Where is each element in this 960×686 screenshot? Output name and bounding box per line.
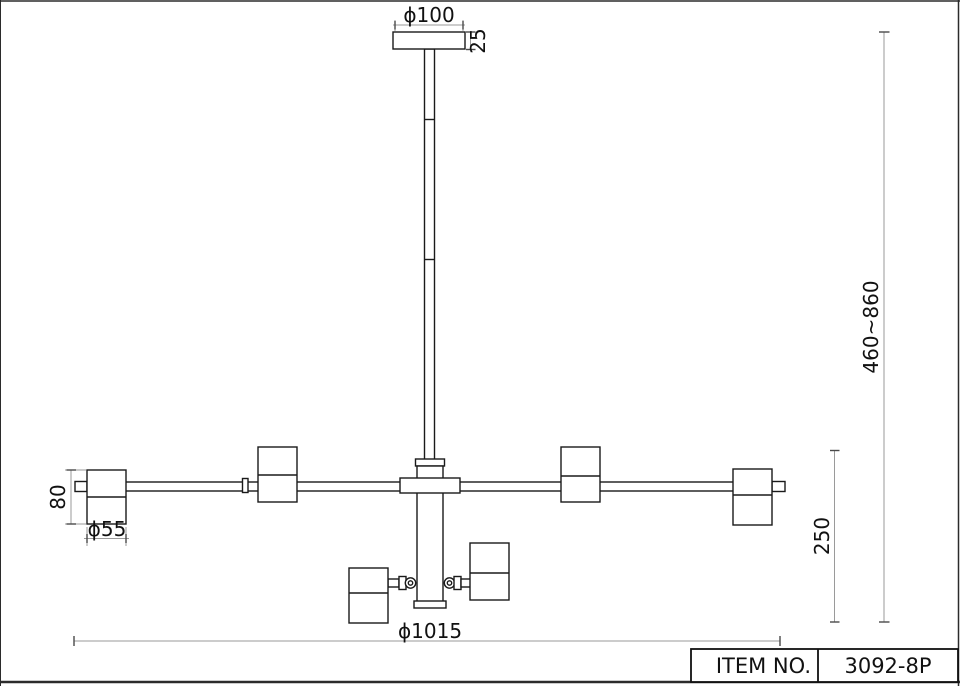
dim-canopy-height: 25 <box>466 28 490 53</box>
dim-label-canopy-height: 25 <box>466 28 490 53</box>
dim-label-shade-diameter: ϕ55 <box>88 517 127 541</box>
dim-fixture-width: ϕ1015 <box>74 619 780 646</box>
dim-drop-height: 250 <box>810 451 840 623</box>
lamp-bottom-right-body <box>470 543 509 600</box>
dim-suspension-range: 460~860 <box>859 32 890 622</box>
lamp-bottom-left <box>349 568 388 623</box>
lamp-bottom-left-body <box>349 568 388 623</box>
lamp-inner-right-body <box>561 447 600 502</box>
dim-label-canopy-diameter: ϕ100 <box>403 3 454 27</box>
dim-canopy-diameter: ϕ100 <box>393 3 465 31</box>
drawing-sheet: ϕ100 25 460~860 250 80 ϕ55 <box>0 0 960 686</box>
lamp-inner-right <box>561 447 600 502</box>
dim-label-drop-height: 250 <box>810 517 834 555</box>
bar-left-end-cap <box>75 482 87 492</box>
lamp-outer-right-body <box>733 469 772 525</box>
central-bottom-cap <box>414 601 446 608</box>
dim-label-suspension-range: 460~860 <box>859 280 883 373</box>
lamp-bottom-right <box>470 543 509 600</box>
dim-shade-diameter: ϕ55 <box>84 517 129 546</box>
left-swivel-arm <box>388 579 399 587</box>
right-swivel-pin <box>447 581 451 585</box>
dim-label-fixture-width: ϕ1015 <box>398 619 462 643</box>
ceiling-canopy <box>393 32 465 49</box>
item-no-value: 3092-8P <box>844 654 931 678</box>
dim-label-shade-height: 80 <box>46 484 70 509</box>
lamp-outer-left <box>87 470 126 524</box>
fixture-suspension <box>393 32 465 466</box>
central-hub-plate <box>400 478 460 493</box>
bar-coupler <box>243 479 249 493</box>
suspension-rod <box>425 49 435 460</box>
dim-shade-height: 80 <box>46 470 86 524</box>
lamp-inner-left <box>258 447 297 502</box>
item-no-label: ITEM NO. <box>716 654 811 678</box>
left-swivel-pin <box>408 581 412 585</box>
bar-right-end-cap <box>772 482 785 492</box>
right-swivel-bracket <box>454 577 461 590</box>
lamp-outer-right <box>733 469 772 525</box>
rod-collar <box>416 459 445 466</box>
title-block: ITEM NO. 3092-8P <box>691 649 958 682</box>
drawing-canvas: ϕ100 25 460~860 250 80 ϕ55 <box>0 0 960 686</box>
